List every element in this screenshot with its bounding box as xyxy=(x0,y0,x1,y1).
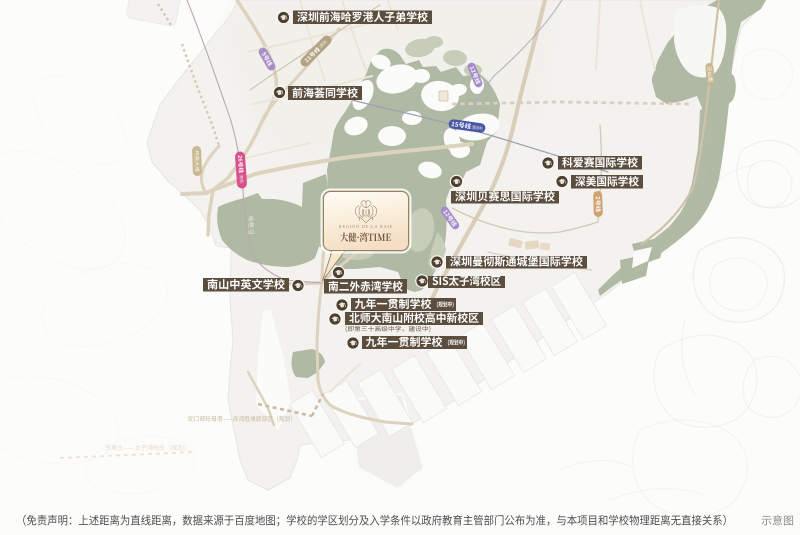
svg-text:REGION DE LA BAIE: REGION DE LA BAIE xyxy=(339,224,393,229)
